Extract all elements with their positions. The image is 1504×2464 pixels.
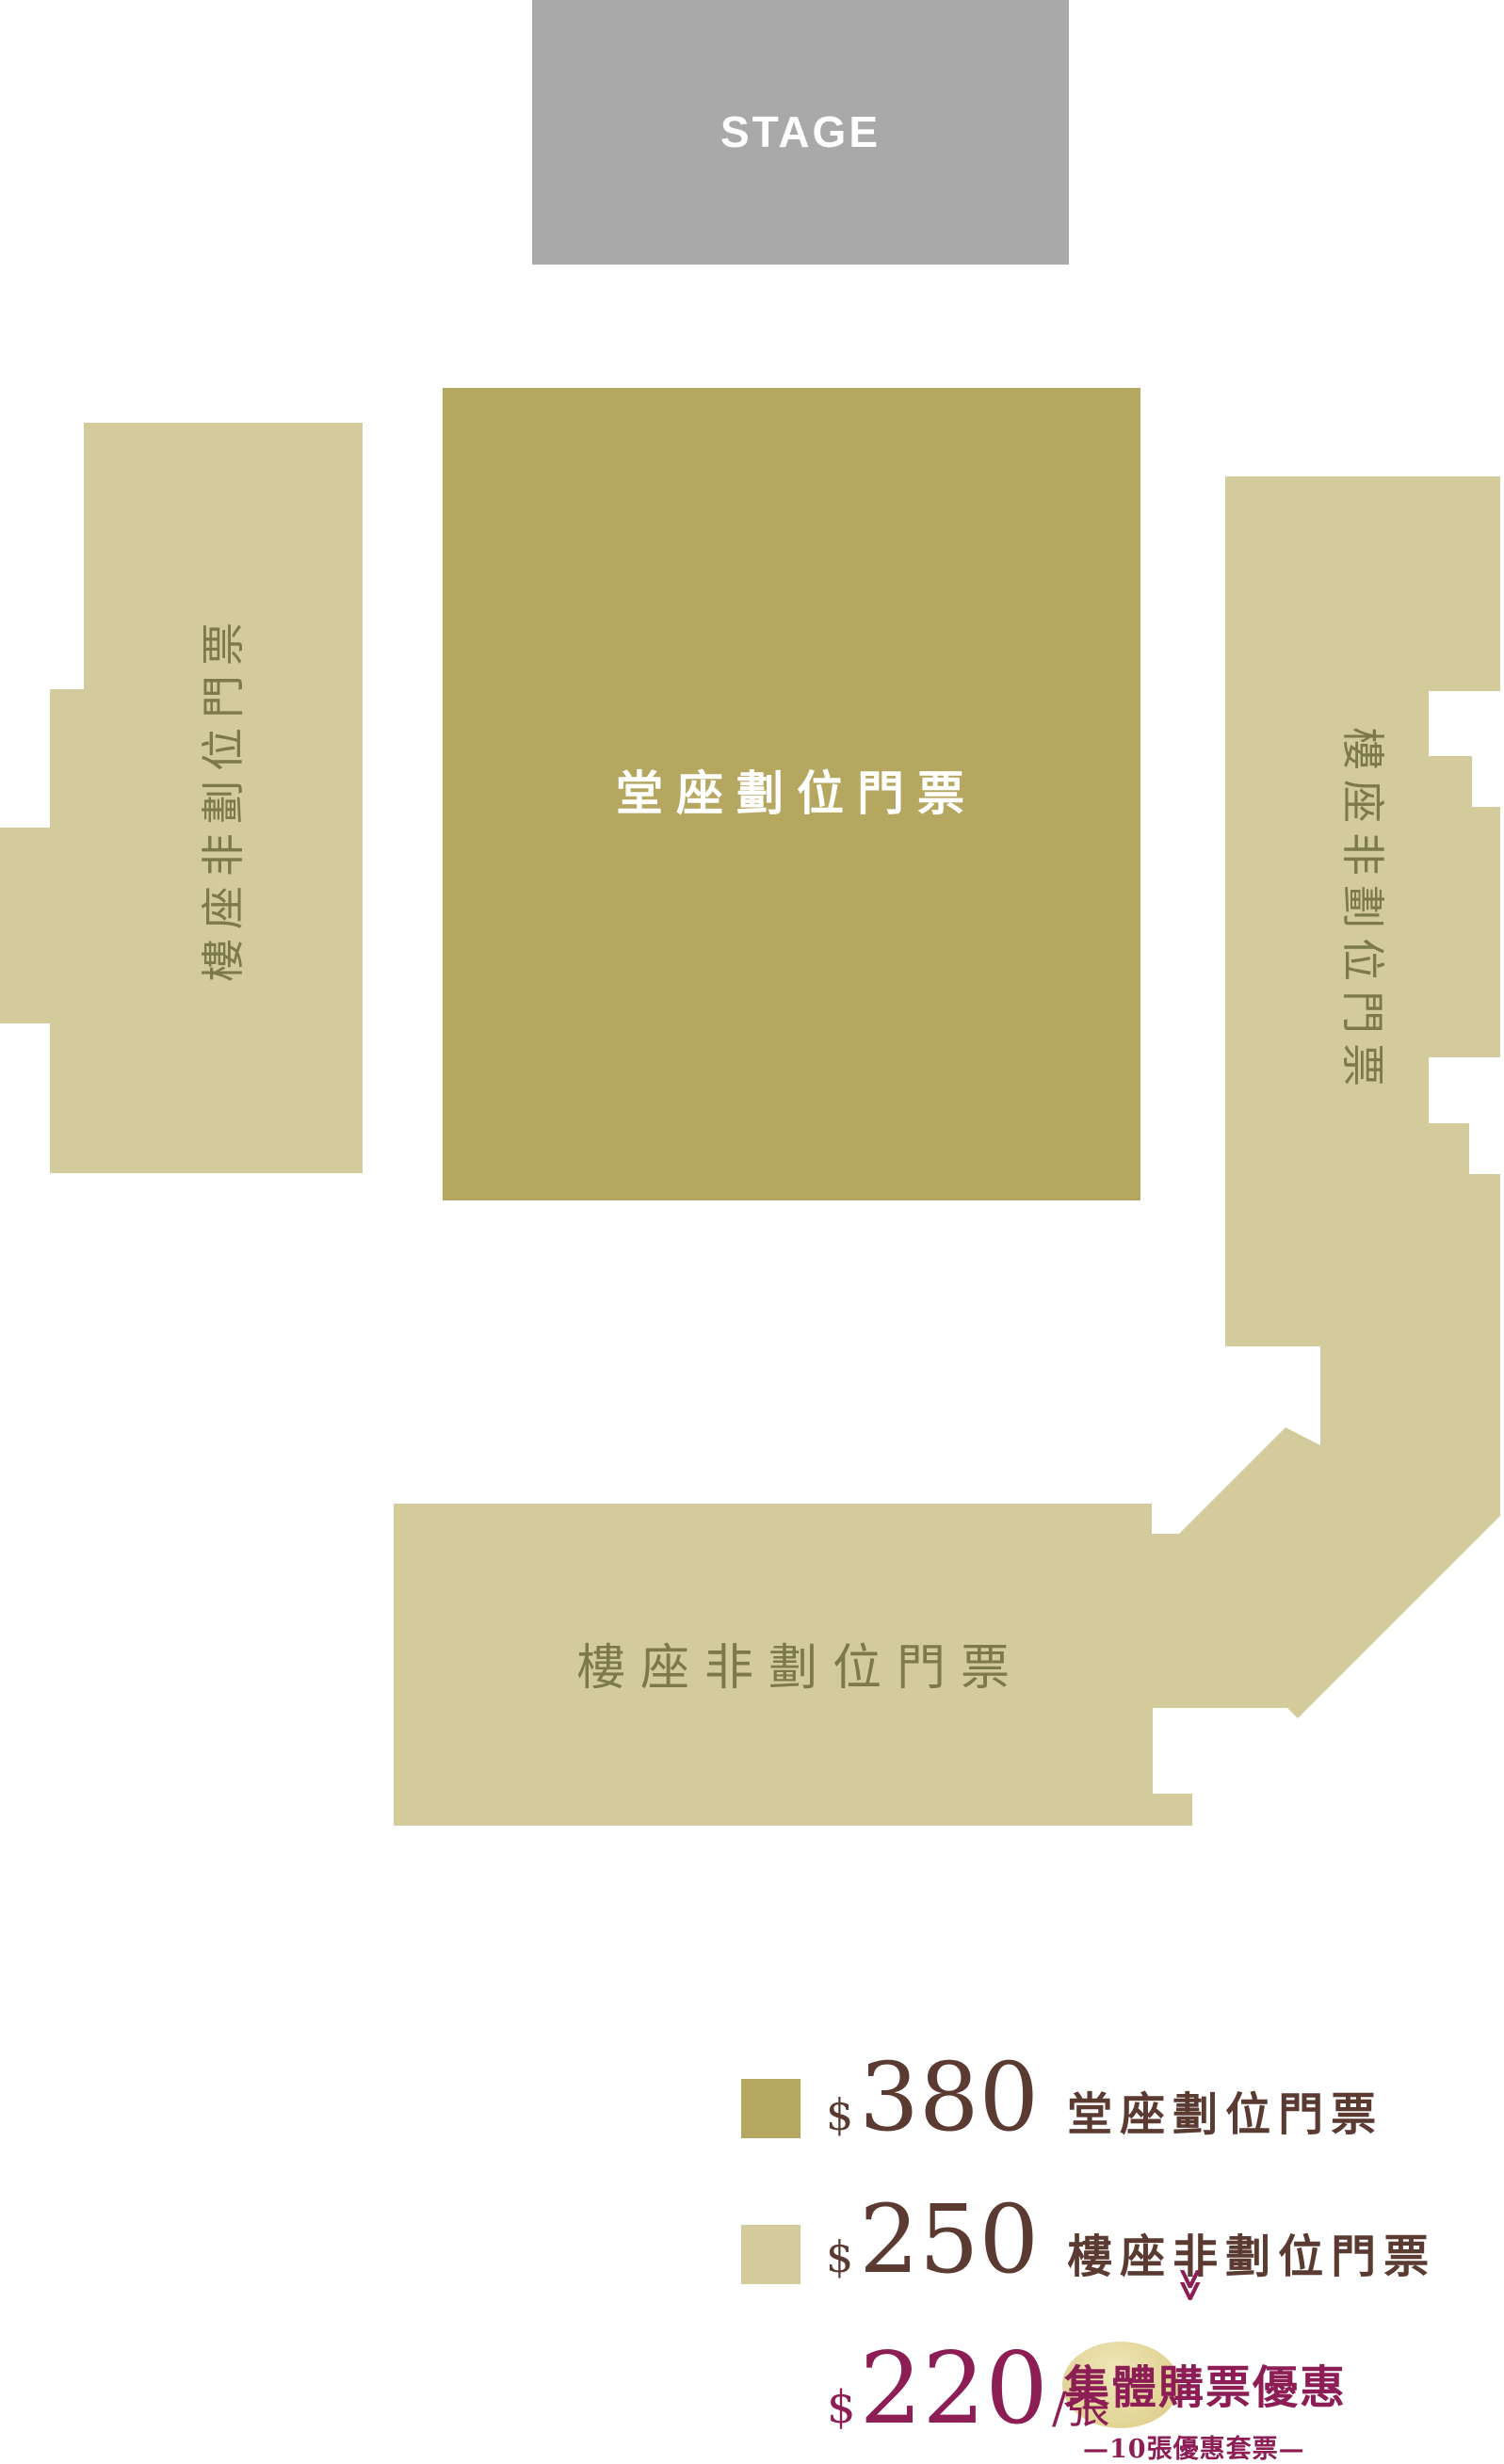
legend-price: 250 [859, 2193, 1039, 2287]
legend-label: 堂座劃位門票 [1067, 2092, 1383, 2137]
legend-price: 380 [859, 2051, 1039, 2145]
zone-balcony-left-block [0, 423, 363, 1173]
zone-balcony-left-label: 樓座非劃位門票 [202, 613, 245, 982]
group-offer-title: 集體購票優惠 [1064, 2365, 1347, 2410]
legend-currency: $ [826, 2235, 853, 2279]
legend-currency: $ [827, 2385, 856, 2430]
legend-price: 220 [860, 2340, 1048, 2439]
zone-stalls-label: 堂座劃位門票 [616, 770, 978, 817]
stage-label: STAGE [720, 110, 881, 153]
zone-balcony-rear-label: 樓座非劃位門票 [576, 1644, 1025, 1693]
seating-map: STAGE 堂座劃位門票 樓座非劃位門票 樓座非劃位門票 樓座非劃位門票 $ 3… [0, 0, 1504, 2464]
legend-row-balcony: $ 250 樓座非劃位門票 [826, 2193, 1436, 2287]
zone-balcony-right-label: 樓座非劃位門票 [1341, 727, 1384, 1096]
chevron-down-icon: ≫ [1174, 2268, 1206, 2298]
legend-currency: $ [826, 2093, 853, 2136]
legend-label: 樓座非劃位門票 [1067, 2234, 1436, 2279]
legend-swatch-stalls [741, 2079, 801, 2138]
legend-row-stalls: $ 380 堂座劃位門票 [826, 2051, 1383, 2145]
group-offer-subtitle: —10張優惠套票— [1083, 2437, 1305, 2462]
legend-swatch-balcony [741, 2225, 801, 2284]
